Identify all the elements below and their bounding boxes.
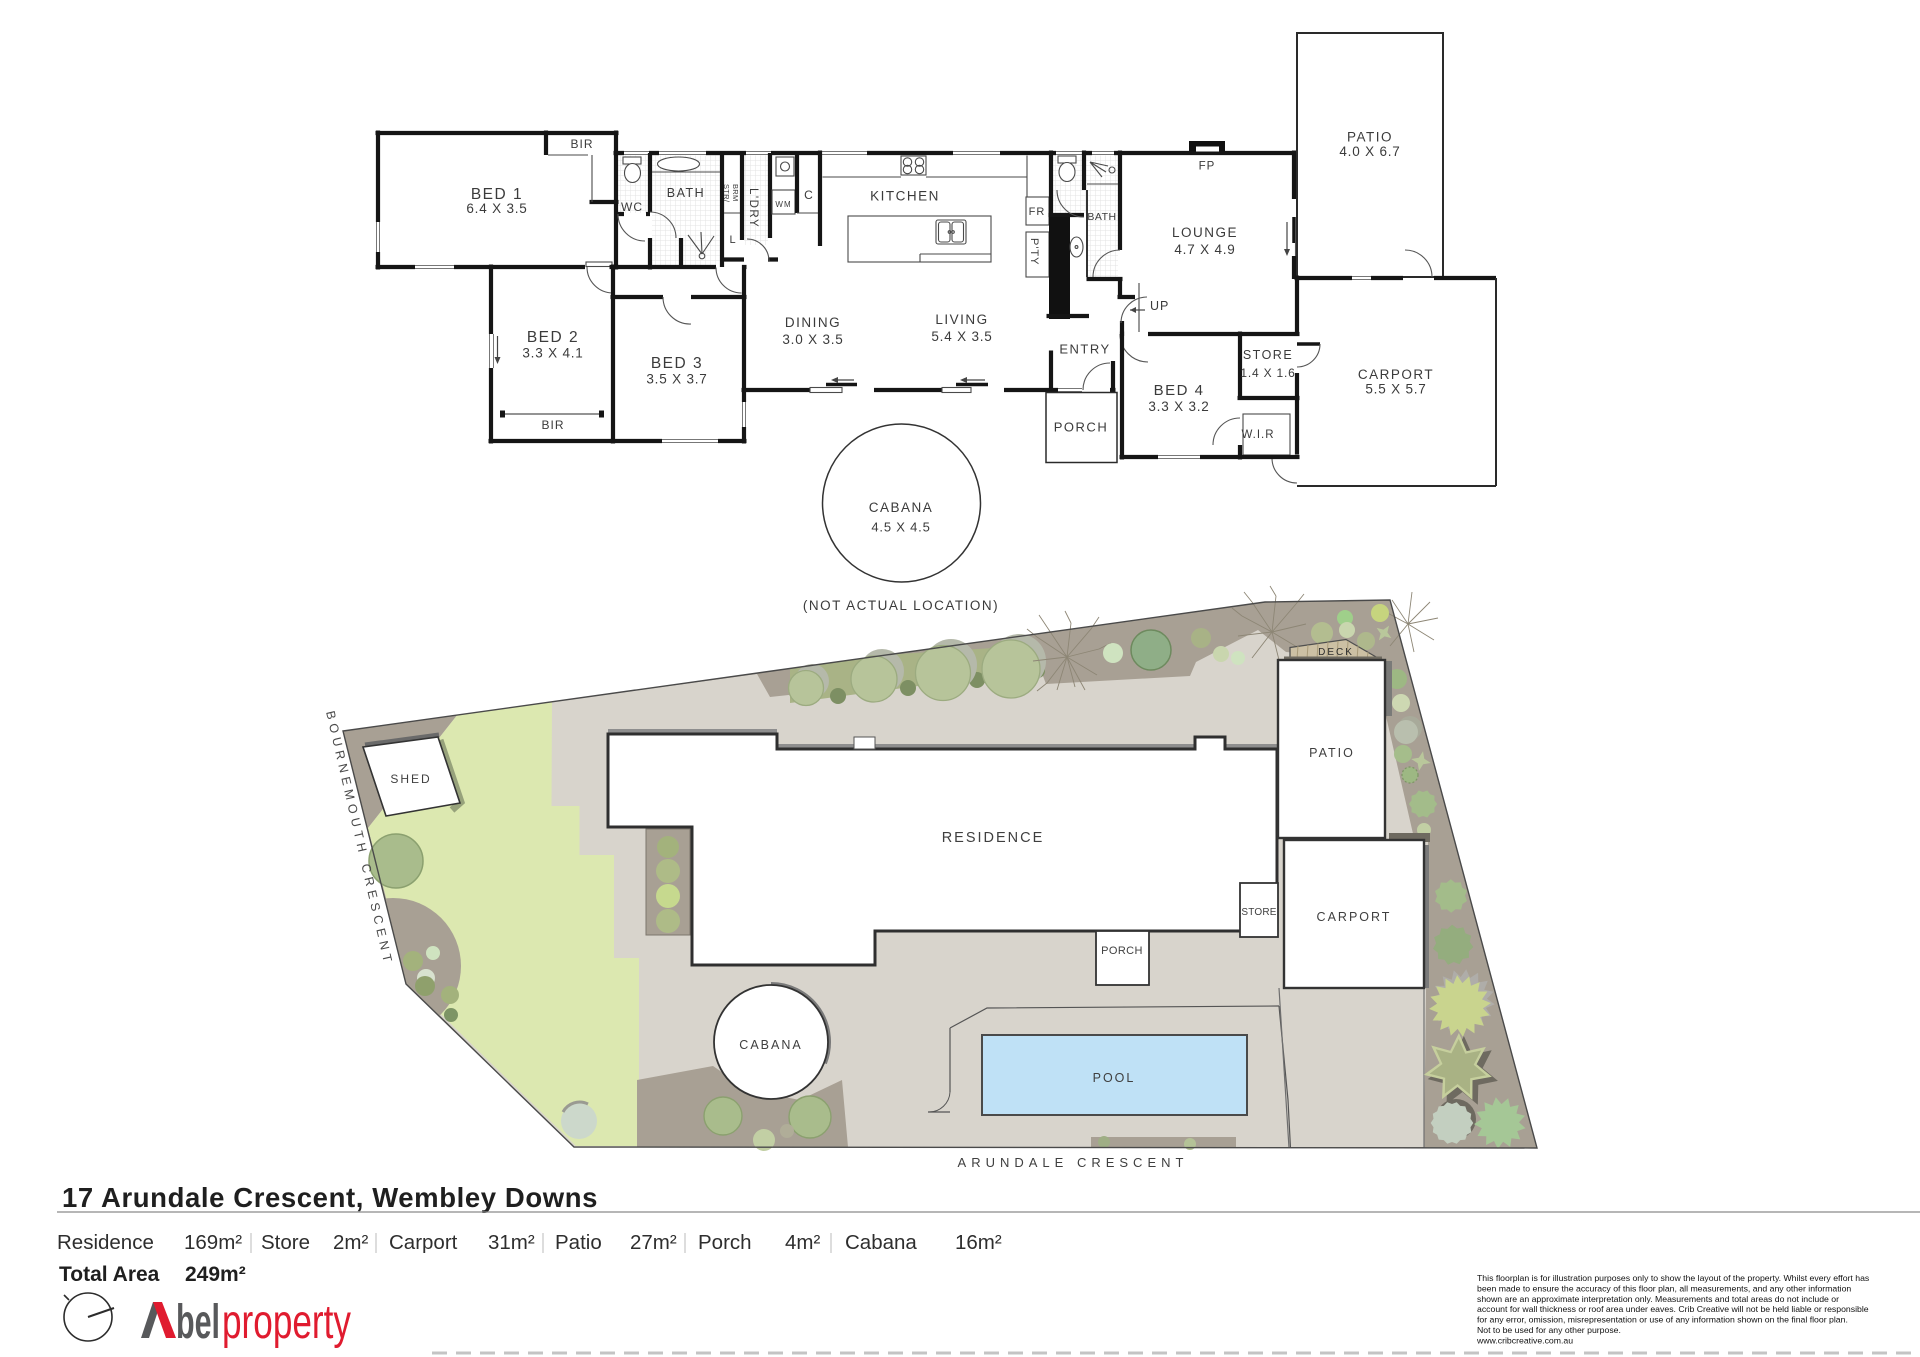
svg-text:PORCH: PORCH xyxy=(1054,420,1108,435)
svg-text:Porch: Porch xyxy=(698,1231,752,1254)
svg-text:STORE: STORE xyxy=(1243,348,1293,362)
svg-text:CARPORT: CARPORT xyxy=(1317,910,1392,924)
svg-text:Carport: Carport xyxy=(389,1231,458,1254)
svg-text:Store: Store xyxy=(261,1231,310,1254)
svg-text:BATH: BATH xyxy=(1087,211,1116,223)
svg-text:FR: FR xyxy=(1029,206,1046,218)
svg-text:RESIDENCE: RESIDENCE xyxy=(942,830,1045,846)
svg-text:PORCH: PORCH xyxy=(1101,945,1143,957)
svg-text:ARUNDALE CRESCENT: ARUNDALE CRESCENT xyxy=(958,1155,1189,1170)
svg-text:L'DRY: L'DRY xyxy=(747,188,759,228)
svg-text:L: L xyxy=(729,234,736,246)
svg-text:DINING: DINING xyxy=(785,315,841,330)
svg-text:WM: WM xyxy=(775,200,791,209)
svg-text:5.4 X 3.5: 5.4 X 3.5 xyxy=(931,329,992,344)
svg-text:PATIO: PATIO xyxy=(1347,130,1393,145)
svg-text:BED 4: BED 4 xyxy=(1154,382,1205,399)
svg-text:POOL: POOL xyxy=(1093,1071,1136,1085)
svg-text:property: property xyxy=(222,1296,351,1349)
svg-text:LOUNGE: LOUNGE xyxy=(1172,225,1238,240)
svg-text:ENTRY: ENTRY xyxy=(1059,342,1110,357)
svg-text:3.0 X 3.5: 3.0 X 3.5 xyxy=(782,332,843,347)
svg-text:This floorplan is for illustra: This floorplan is for illustration purpo… xyxy=(1477,1273,1870,1283)
svg-text:BRM: BRM xyxy=(731,184,740,202)
svg-text:CARPORT: CARPORT xyxy=(1358,367,1434,382)
svg-text:Not to be used for any other p: Not to be used for any other purpose. xyxy=(1477,1325,1621,1335)
svg-text:account for wall thickness or: account for wall thickness or roof area … xyxy=(1477,1304,1869,1314)
svg-text:PATIO: PATIO xyxy=(1309,746,1355,760)
svg-text:31m²: 31m² xyxy=(488,1231,535,1254)
svg-text:17 Arundale Crescent, Wembley: 17 Arundale Crescent, Wembley Downs xyxy=(62,1182,598,1213)
svg-text:Total Area: Total Area xyxy=(59,1263,160,1286)
svg-text:BIR: BIR xyxy=(570,137,593,151)
svg-text:27m²: 27m² xyxy=(630,1231,677,1254)
svg-text:169m²: 169m² xyxy=(184,1231,242,1254)
svg-text:W.I.R: W.I.R xyxy=(1241,429,1274,441)
svg-text:STR/: STR/ xyxy=(722,184,731,203)
svg-text:16m²: 16m² xyxy=(955,1231,1002,1254)
svg-text:6.4 X 3.5: 6.4 X 3.5 xyxy=(466,201,527,216)
svg-text:4.7 X 4.9: 4.7 X 4.9 xyxy=(1174,242,1235,257)
svg-text:DECK: DECK xyxy=(1318,647,1354,658)
svg-text:shown are an approximate inter: shown are an approximate interpretation … xyxy=(1477,1294,1839,1304)
svg-text:3.3 X 3.2: 3.3 X 3.2 xyxy=(1148,399,1209,414)
svg-text:5.5 X 5.7: 5.5 X 5.7 xyxy=(1365,382,1426,397)
svg-text:C: C xyxy=(804,188,814,202)
svg-text:4.5 X 4.5: 4.5 X 4.5 xyxy=(871,520,930,535)
svg-text:Patio: Patio xyxy=(555,1231,602,1254)
svg-text:BIR: BIR xyxy=(541,418,564,432)
svg-text:P'TY: P'TY xyxy=(1028,238,1040,266)
svg-text:LIVING: LIVING xyxy=(935,312,988,327)
svg-text:been made to ensure the accura: been made to ensure the accuracy of this… xyxy=(1477,1283,1851,1293)
svg-text:for any error, omission, misre: for any error, omission, misrepresentati… xyxy=(1477,1315,1848,1325)
svg-text:4.0 X 6.7: 4.0 X 6.7 xyxy=(1339,144,1400,159)
svg-text:www.cribcreative.com.au: www.cribcreative.com.au xyxy=(1476,1335,1573,1345)
svg-text:Cabana: Cabana xyxy=(845,1231,917,1254)
svg-text:KITCHEN: KITCHEN xyxy=(870,189,940,204)
svg-text:249m²: 249m² xyxy=(185,1263,246,1286)
svg-text:SHED: SHED xyxy=(390,772,431,786)
svg-text:BATH: BATH xyxy=(667,186,705,200)
svg-text:bel: bel xyxy=(176,1296,220,1349)
svg-text:Residence: Residence xyxy=(57,1231,154,1254)
svg-text:WC: WC xyxy=(621,200,643,214)
svg-text:BED 3: BED 3 xyxy=(651,355,703,372)
svg-text:3.5 X 3.7: 3.5 X 3.7 xyxy=(646,372,707,387)
svg-text:3.3 X 4.1: 3.3 X 4.1 xyxy=(522,346,583,361)
svg-text:UP: UP xyxy=(1150,299,1169,313)
svg-text:STORE: STORE xyxy=(1241,907,1276,918)
svg-text:BED 2: BED 2 xyxy=(527,329,579,346)
svg-text:FP: FP xyxy=(1199,161,1216,173)
svg-text:CABANA: CABANA xyxy=(869,500,934,515)
svg-text:(NOT ACTUAL LOCATION): (NOT ACTUAL LOCATION) xyxy=(803,598,999,613)
svg-text:2m²: 2m² xyxy=(333,1231,368,1254)
svg-text:CABANA: CABANA xyxy=(739,1038,802,1052)
svg-text:1.4 X 1.6: 1.4 X 1.6 xyxy=(1240,366,1295,380)
svg-text:4m²: 4m² xyxy=(785,1231,820,1254)
